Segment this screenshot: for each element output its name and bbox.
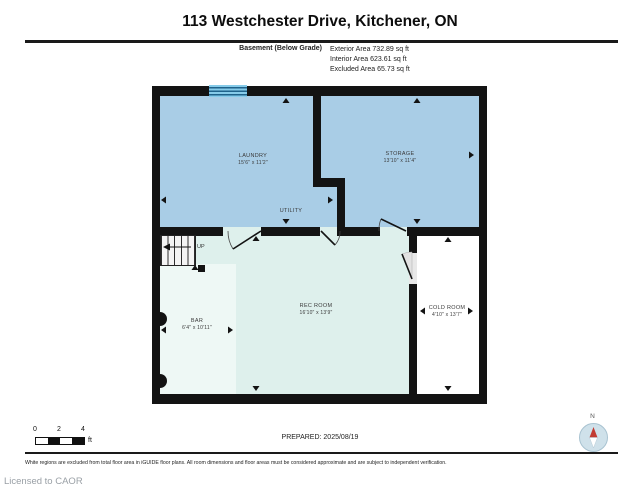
excluded-area: Excluded Area 65.73 sq ft [330, 65, 410, 75]
door-gap-2 [320, 227, 337, 236]
floor-plan-page: 113 Westchester Drive, Kitchener, ON Bas… [0, 0, 640, 494]
wall-utility-stub [337, 178, 345, 236]
room-label-utility: UTILITY [261, 208, 321, 215]
scale-tick-2: 2 [55, 426, 63, 433]
door-gap-3 [380, 227, 407, 236]
room-label-laundry: LAUNDRY 15'6" x 11'2" [203, 153, 303, 166]
staircase [160, 235, 196, 266]
window-icon [209, 85, 247, 97]
support-post [198, 265, 205, 272]
wall-top [152, 86, 487, 96]
wall-mid-2 [261, 227, 320, 236]
floor-label: Basement (Below Grade) [142, 45, 322, 52]
compass-north-label: N [579, 413, 606, 420]
stairs-up-label: UP [197, 244, 205, 250]
wall-right [479, 86, 487, 404]
wall-mid-3 [345, 227, 380, 236]
room-label-cold-room: COLD ROOM 4'10" x 13'7" [397, 305, 497, 318]
room-name: UTILITY [261, 208, 321, 215]
room-label-bar: BAR 6'4" x 10'11" [147, 318, 247, 331]
wall-left [152, 86, 160, 404]
exterior-area: Exterior Area 732.89 sq ft [330, 45, 410, 55]
area-summary: Exterior Area 732.89 sq ft Interior Area… [330, 45, 410, 75]
wall-cold-upper [409, 236, 417, 253]
license-text: Licensed to CAOR [4, 476, 83, 487]
header-divider [25, 40, 618, 43]
room-dims: 6'4" x 10'11" [147, 325, 247, 332]
disclaimer-text: White regions are excluded from total fl… [25, 460, 447, 466]
door-gap-1 [223, 227, 261, 236]
footer-divider [25, 452, 618, 454]
prepared-date: PREPARED: 2025/08/19 [0, 434, 640, 441]
scale-tick-0: 0 [31, 426, 39, 433]
room-dims: 16'10" x 13'9" [266, 310, 366, 317]
room-label-rec-room: REC ROOM 16'10" x 13'9" [266, 303, 366, 316]
room-dims: 4'10" x 13'7" [397, 312, 497, 319]
interior-area: Interior Area 623.61 sq ft [330, 55, 410, 65]
wall-mid-4 [407, 227, 487, 236]
wall-bottom [152, 394, 487, 404]
compass-needle [580, 424, 607, 451]
room-dims: 13'10" x 11'4" [350, 158, 450, 165]
room-label-storage: STORAGE 13'10" x 11'4" [350, 151, 450, 164]
wall-cold-lower [409, 284, 417, 394]
wall-laundry-storage [313, 96, 321, 186]
compass-icon [579, 423, 608, 452]
scale-tick-4: 4 [79, 426, 87, 433]
page-title: 113 Westchester Drive, Kitchener, ON [0, 13, 640, 31]
door-gap-cold [409, 253, 417, 284]
room-dims: 15'6" x 11'2" [203, 160, 303, 167]
